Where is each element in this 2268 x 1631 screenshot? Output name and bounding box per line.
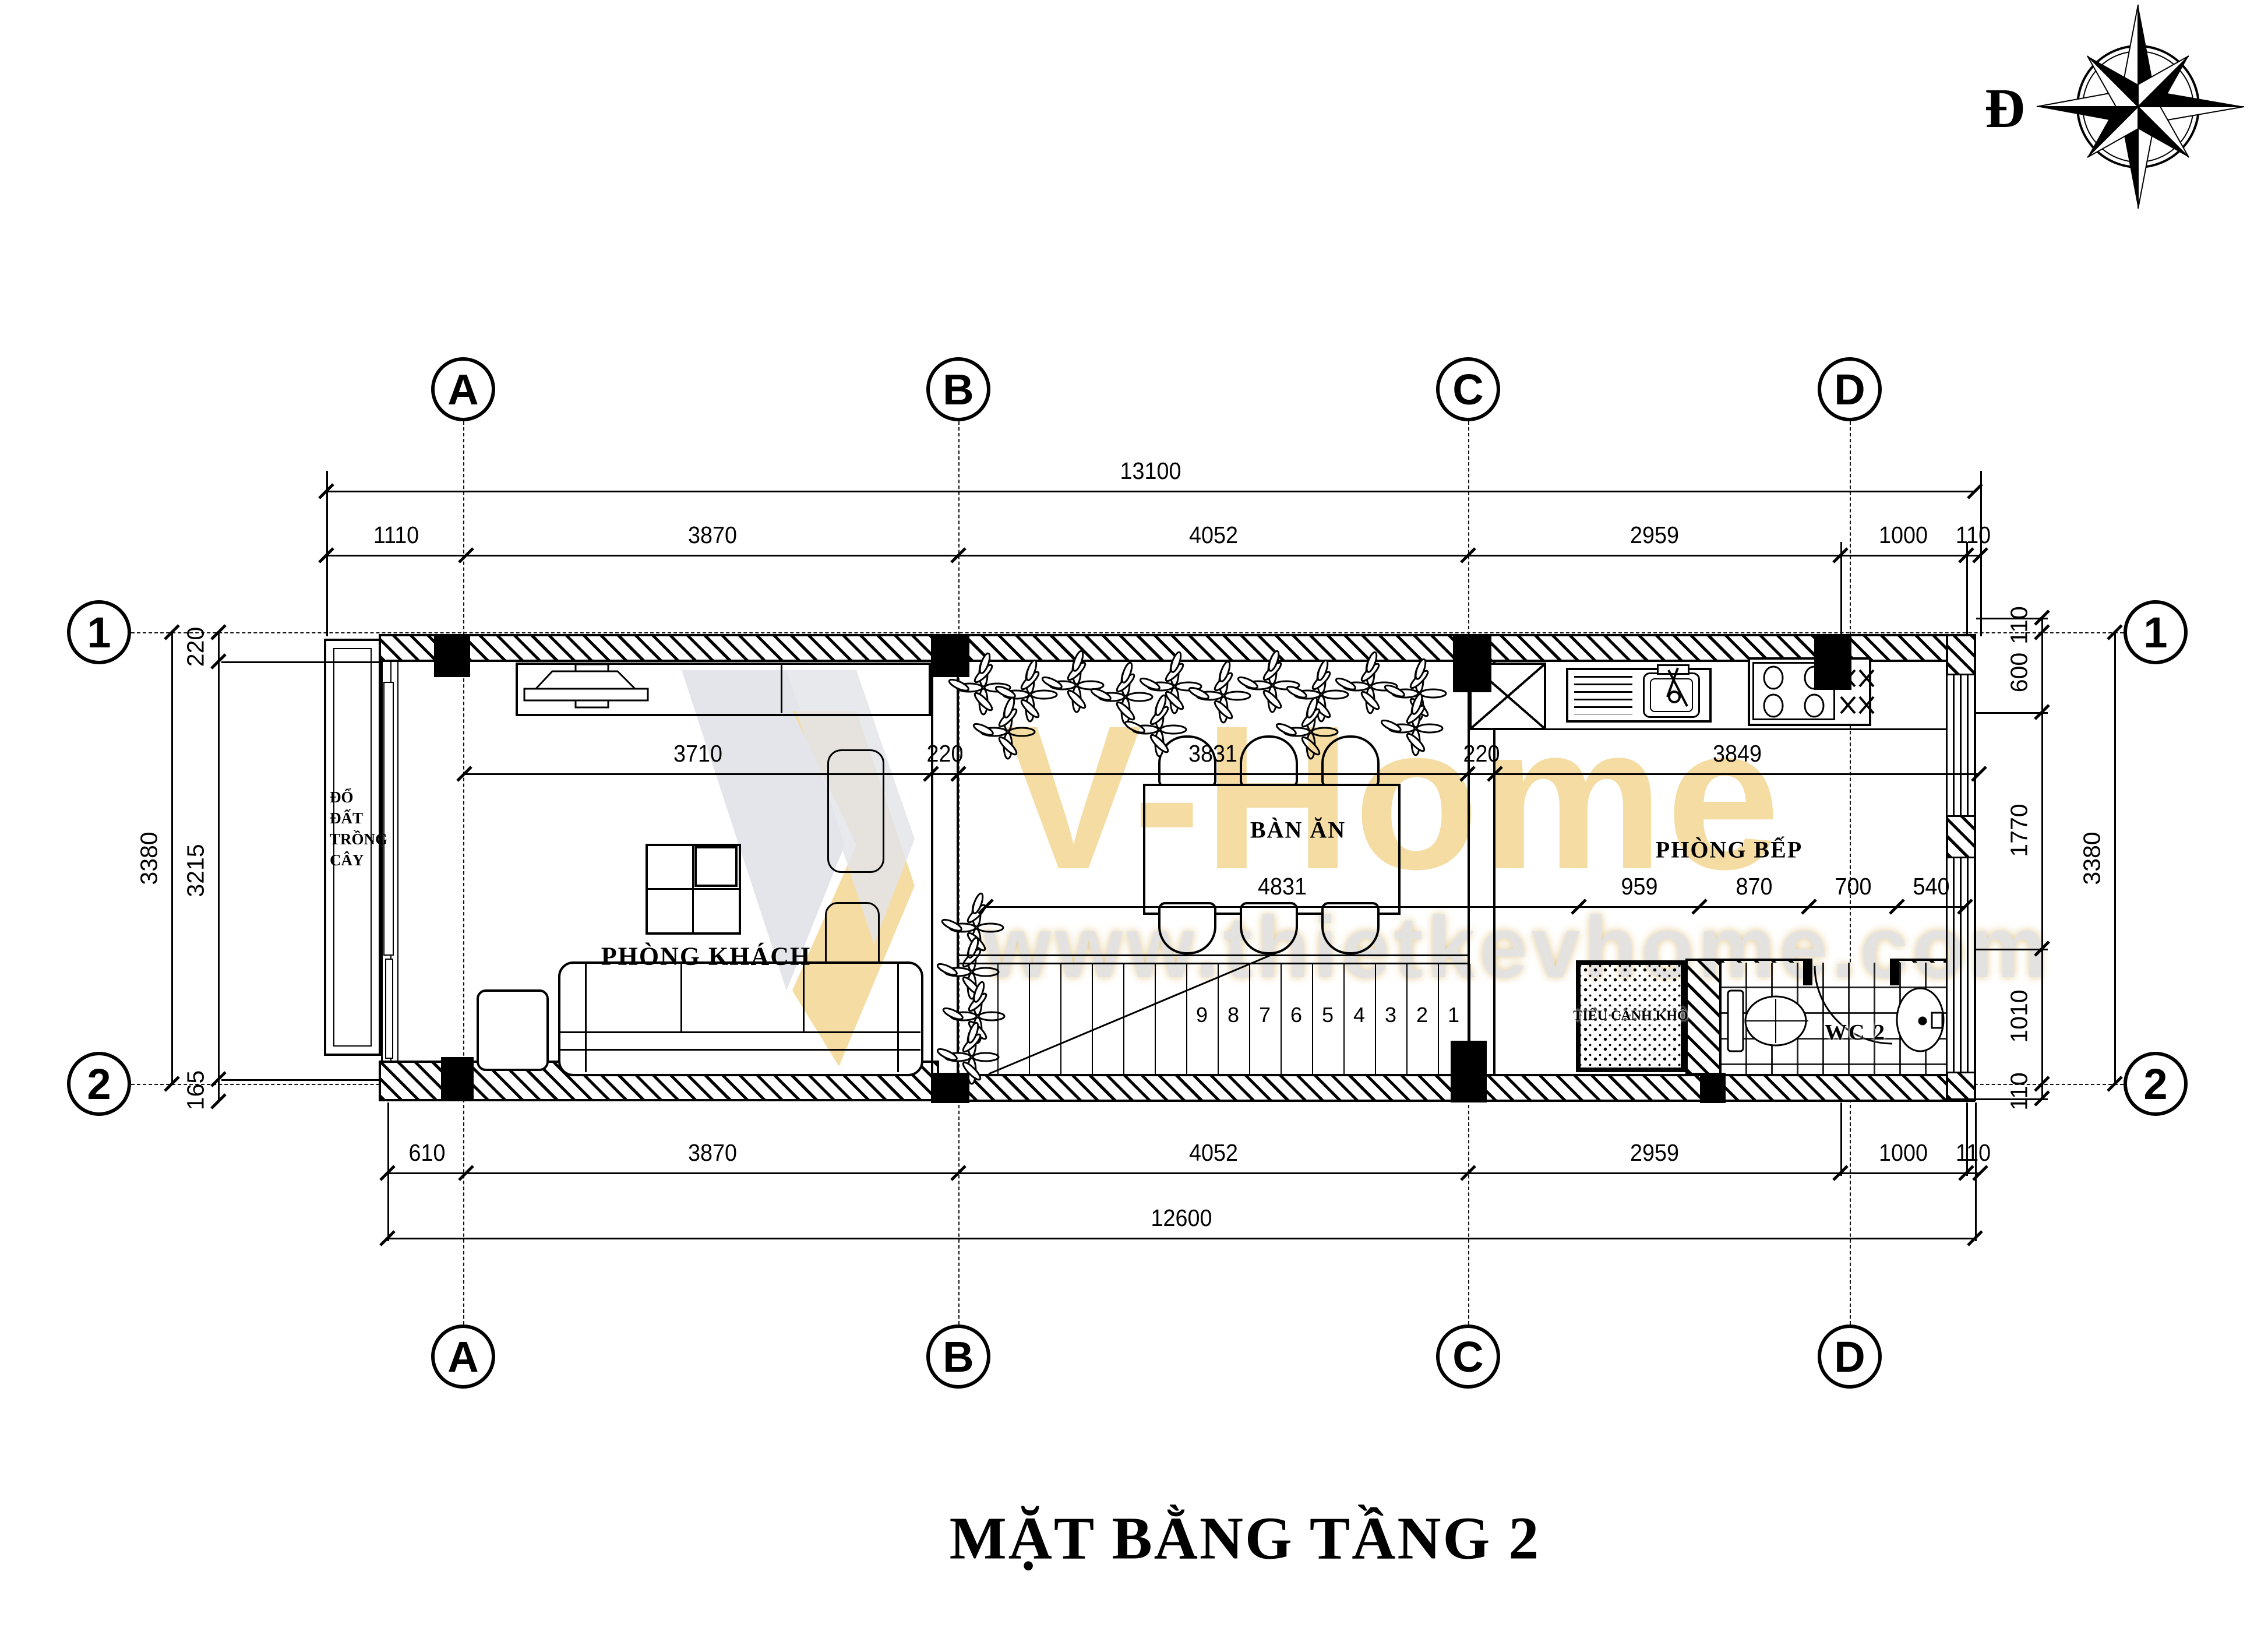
stair-tread <box>1406 964 1408 1074</box>
column <box>931 1073 969 1103</box>
dimension-label: 4831 <box>1258 873 1307 900</box>
dimension-line <box>326 555 1980 556</box>
stair-tread <box>1186 964 1187 1074</box>
stair-number: 1 <box>1448 1003 1459 1027</box>
dimension-label: 220 <box>926 740 963 767</box>
washbasin-icon <box>1897 988 1944 1051</box>
dimension-label: 3870 <box>688 1139 737 1167</box>
grid-bubble: D <box>1818 357 1882 421</box>
line <box>959 963 1468 964</box>
stair-tread <box>1281 964 1282 1074</box>
dimension-label: 3831 <box>1188 740 1237 767</box>
dimension-label: 1770 <box>2005 804 2033 857</box>
line <box>560 1049 920 1051</box>
dimension-label: 600 <box>2005 652 2033 692</box>
dimension-label: 3710 <box>673 740 722 767</box>
stair-number: 9 <box>1196 1003 1208 1027</box>
grid-bubble: B <box>926 357 990 421</box>
line <box>221 1079 380 1081</box>
line <box>803 964 805 1031</box>
wc-label: WC 2 <box>1825 1020 1886 1045</box>
line <box>221 661 380 663</box>
stair-tread <box>1249 964 1250 1074</box>
line <box>585 964 587 1072</box>
grid-bubble: 1 <box>67 600 131 664</box>
dimension-label: 3870 <box>688 522 737 549</box>
stair-tread <box>997 964 999 1074</box>
dimension-line <box>2114 632 2116 1084</box>
dimension-label: 110 <box>1956 522 1991 549</box>
column <box>1814 634 1851 690</box>
planter-label-line: ĐỔ <box>330 787 387 808</box>
stair-tread <box>1312 964 1313 1074</box>
dimension-label: 220 <box>1463 740 1500 767</box>
stair-number: 5 <box>1322 1003 1334 1027</box>
stair-number: 2 <box>1416 1003 1428 1027</box>
stair-tread <box>1029 964 1030 1074</box>
column <box>441 1057 474 1101</box>
grid-bubble: C <box>1436 1324 1500 1389</box>
compass-east-label: Đ <box>1985 77 2025 139</box>
stair-tread <box>1343 964 1345 1074</box>
dimension-label: 610 <box>408 1139 445 1167</box>
planter-label-line: ĐẤT <box>330 808 387 829</box>
dimension-label: 4052 <box>1189 1139 1238 1167</box>
column <box>1453 634 1491 692</box>
line <box>959 954 1468 956</box>
dimension-line <box>218 632 220 1101</box>
dimension-label: 700 <box>1835 873 1871 900</box>
compass-rose: Đ <box>1985 5 2244 209</box>
dimension-label: 1110 <box>373 522 419 549</box>
tv-icon <box>524 664 648 707</box>
drawing-title: MẶT BẰNG TẦNG 2 <box>950 1504 1541 1573</box>
dimension-label: 110 <box>1956 1139 1991 1167</box>
dimension-label: 3380 <box>2078 832 2105 885</box>
line <box>1468 728 1946 730</box>
line <box>1840 1102 1842 1176</box>
grid-bubble: A <box>431 357 495 421</box>
dimension-label: 110 <box>2005 1072 2033 1110</box>
line <box>897 964 899 1072</box>
stair-number: 8 <box>1228 1003 1239 1027</box>
grid-bubble: 2 <box>2124 1052 2188 1116</box>
column <box>1700 1073 1726 1103</box>
line <box>680 964 682 1031</box>
grid-bubble: B <box>926 1324 990 1389</box>
dimension-label: 12600 <box>1151 1204 1212 1232</box>
column <box>931 634 969 677</box>
kitchen-label: PHÒNG BẾP <box>1656 836 1803 864</box>
dimension-label: 3380 <box>135 832 163 885</box>
stair-tread <box>1060 964 1061 1074</box>
dimension-line <box>986 906 1965 908</box>
dimension-label: 1000 <box>1879 522 1928 549</box>
dimension-label: 4052 <box>1189 522 1238 549</box>
line <box>1975 1102 1977 1241</box>
faucet-icon <box>1667 668 1687 706</box>
dimension-label: 13100 <box>1120 457 1181 485</box>
stair-number: 3 <box>1385 1003 1396 1027</box>
grid-bubble: 1 <box>2124 600 2188 664</box>
dimension-label: 540 <box>1913 873 1949 900</box>
stair-tread <box>1123 964 1124 1074</box>
line <box>560 1031 920 1033</box>
grid-bubble: D <box>1818 1324 1882 1389</box>
grid-bubble: 2 <box>67 1052 131 1116</box>
dimension-label: 1000 <box>1879 1139 1928 1167</box>
dimension-line <box>171 632 173 1084</box>
floor-plan-canvas: ĐỔ ĐẤT TRỒNG CÂY PHÒNG KHÁCH BÀN ĂN PHÒN… <box>0 0 2268 1631</box>
stair-number: 7 <box>1259 1003 1271 1027</box>
dimension-label: 3215 <box>182 844 209 897</box>
planter-label: ĐỔ ĐẤT TRỒNG CÂY <box>330 787 387 871</box>
dimension-label: 959 <box>1621 873 1657 900</box>
dimension-label: 3849 <box>1713 740 1762 767</box>
line <box>781 664 782 713</box>
stair-tread <box>1155 964 1156 1074</box>
stair-tread <box>1438 964 1439 1074</box>
dimension-label: 220 <box>182 627 209 667</box>
line <box>692 845 694 933</box>
stair-number: 6 <box>1290 1003 1302 1027</box>
dry-garden-label: TIỂU CẢNH KHÔ <box>1573 1009 1688 1024</box>
grid-bubble: A <box>431 1324 495 1389</box>
stair-tread <box>1375 964 1376 1074</box>
line <box>1976 949 2048 950</box>
dining-table-label: BÀN ĂN <box>1250 816 1346 844</box>
dimension-line <box>2041 618 2043 1098</box>
dimension-line <box>387 1238 1975 1239</box>
dimension-line <box>326 491 1975 492</box>
dimension-label: 2959 <box>1630 1139 1679 1167</box>
stair-tread <box>1092 964 1093 1074</box>
toilet-icon <box>1728 991 1808 1051</box>
dimension-label: 165 <box>182 1070 209 1110</box>
column <box>434 634 470 677</box>
line <box>1976 712 2048 714</box>
dimension-label: 870 <box>1736 873 1773 900</box>
planter-label-line: TRỒNG <box>330 829 387 850</box>
column <box>1451 1041 1487 1102</box>
dimension-line <box>387 1172 1980 1174</box>
stair-break-line <box>989 950 1283 1074</box>
stair-number: 4 <box>1353 1003 1365 1027</box>
living-room-label: PHÒNG KHÁCH <box>601 942 812 971</box>
dimension-label: 110 <box>2005 606 2033 644</box>
dimension-label: 2959 <box>1630 522 1679 549</box>
plant-strip <box>936 892 1004 1084</box>
grid-bubble: C <box>1436 357 1500 421</box>
dimension-label: 1010 <box>2005 989 2033 1042</box>
stair-tread <box>1218 964 1219 1074</box>
planter-label-line: CÂY <box>330 850 387 871</box>
dimension-line <box>464 773 1979 775</box>
